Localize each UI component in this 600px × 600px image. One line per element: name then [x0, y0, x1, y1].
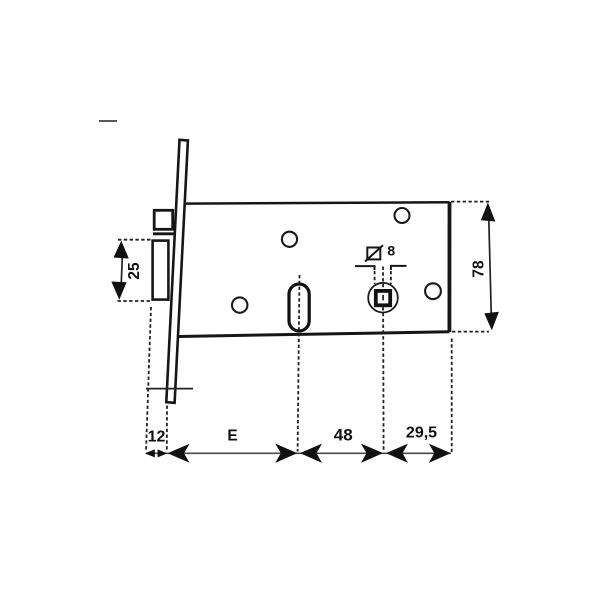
svg-text:48: 48	[334, 426, 353, 445]
svg-text:78: 78	[471, 260, 488, 278]
svg-text:8: 8	[387, 242, 395, 258]
svg-text:29,5: 29,5	[406, 425, 437, 442]
svg-text:12: 12	[148, 429, 166, 446]
svg-text:E: E	[227, 428, 237, 445]
svg-text:25: 25	[126, 262, 143, 280]
